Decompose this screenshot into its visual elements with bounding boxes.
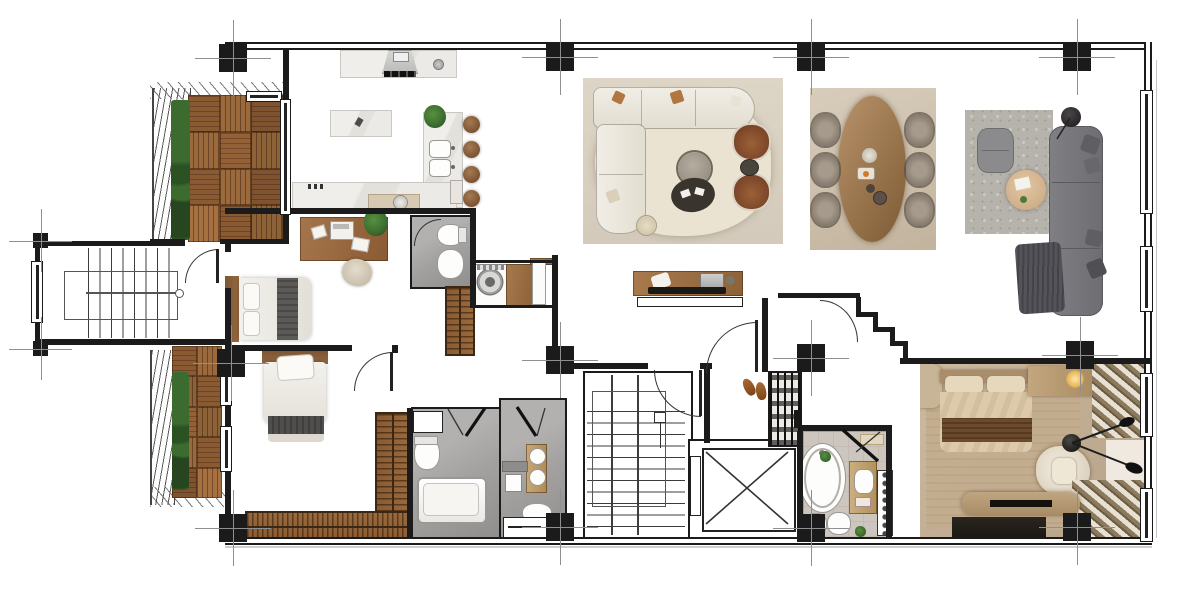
column [1063,513,1091,541]
lounge-throw [1015,241,1066,314]
column [219,514,247,542]
living-room-floor [583,78,783,244]
bar-stool [463,166,480,183]
wall-bottom-shadow [225,546,1152,548]
tray-dot [863,171,869,177]
wc-toilet [437,249,464,279]
sofa-pillow [730,95,742,107]
wall-wc-east [470,208,476,308]
bar-sink [429,159,451,177]
table-plate [862,148,877,163]
desk-papers [351,237,370,253]
sofa-seam [1052,182,1100,183]
entry-stair-landing [64,271,178,320]
deck-tile [188,95,220,132]
master-bedroom-photo [920,362,1145,543]
bath-plant [820,451,831,462]
floor-lamp-living [637,216,656,235]
stair-arrow-stem [660,422,661,448]
dining-chair [906,194,933,226]
entry-door-leaf [216,249,219,283]
wall-stairs-top [35,241,185,246]
hood-vent [393,52,409,62]
stair-up-arrow [655,413,665,422]
lounge-rug [965,110,1053,234]
table-plant-dot [1020,196,1027,203]
deck-tile [197,468,222,498]
column [217,349,245,377]
bedside-lamp-glow [1066,370,1084,388]
bed2-pillow [276,354,315,382]
bed2-foot-blanket [268,434,324,442]
wall-bedroom1-north [225,208,475,214]
deck-tile [197,376,222,406]
master-bed-pillow [987,376,1025,393]
bathtub-inner [423,483,479,516]
deck-tile [220,132,252,169]
wall-balcony-bottom [220,239,289,244]
dining-chair [906,154,933,186]
bath-shelf [503,462,527,471]
bath-towel-shelf [860,434,884,445]
floor-plan [0,0,1182,591]
entry-door-arc [185,249,219,283]
wall-bathA-west [407,408,413,537]
bedside-desk [1028,366,1094,396]
window-light [1106,440,1145,480]
wall-kitchen-west-upper [283,48,289,100]
dining-floor [810,88,936,250]
plant-wall-upper [171,100,190,240]
deck-tile [251,169,283,206]
deck-tile [188,132,220,169]
side-table [741,160,758,175]
hall-door-leaf [699,370,702,416]
sofa-pillow-gray [1085,229,1104,248]
console-deco-dots [726,276,735,285]
column [546,346,574,374]
wall-top [225,42,1152,50]
elevator-door-panel [690,456,701,516]
sink-faucet-dot [451,165,455,169]
wall-right-sill [1156,60,1157,538]
console-shelf-outline [637,297,743,307]
wall-kitchen-west-lower [283,212,289,242]
living-door-leaf [755,320,758,372]
counter-bottles [450,180,463,204]
slipper [755,381,768,400]
kitchen-balcony-slider [280,99,291,215]
corridor-door-arc [820,300,858,342]
bed1-throw [277,278,298,340]
sofa-cushion-line [599,174,643,175]
column [797,43,825,71]
hall-cabinet-door [532,261,546,305]
deck-tile [188,205,220,242]
column [797,514,825,542]
master-floor-lamp-base [1062,434,1081,452]
master-toilet [827,512,851,535]
master-bed-throw [942,418,1032,442]
column-small [33,233,48,248]
deck-tile [197,407,222,437]
counter-faucet [434,60,443,69]
column [219,44,247,72]
column [546,43,574,71]
elevator-car [702,448,796,532]
wall-masterbath-top [800,425,889,431]
sofa-cushion-line [641,90,642,126]
column [1063,43,1091,71]
armchair-brown [734,175,769,209]
window-right [1140,373,1153,437]
bar-stool [463,190,480,207]
counter-hob-marks [308,184,324,189]
wardrobe-slatted-large [375,412,411,516]
bar-stool [463,116,480,133]
wc-cistern [458,227,467,243]
wall-zigzag-top [778,293,860,298]
vanity-tray [855,497,871,507]
bedroom2-door-arc [354,352,393,391]
floor-lamp-lounge [1061,107,1081,127]
sectional-sofa-left [596,124,646,234]
deck-tile [188,169,220,206]
bedroom2-balcony-window [220,426,232,472]
deck-tile [251,132,283,169]
balcony-deck-upper [188,95,283,242]
fireplace-slot [990,500,1052,507]
balcony-top-slider [246,91,282,102]
column [1066,341,1094,369]
column [797,344,825,372]
wall-laundry-bottom [472,305,558,308]
dining-chair [812,114,839,146]
laundry-counter-wood [506,264,533,306]
washer [478,270,502,294]
table-cup [874,192,886,204]
bath-plant [855,526,866,537]
sofa-cushion-line [695,90,696,126]
console-tv-bar [648,287,726,294]
bath-sink-box [413,411,443,433]
bar-stool [463,141,480,158]
curtains-top-right [1092,362,1145,438]
stair-landing-rect [592,391,666,507]
bed1-pillow [243,311,260,336]
dining-chair [812,154,839,186]
wall-corridor-east [704,363,710,443]
dining-chair [906,114,933,146]
counter-plant [424,105,446,128]
entry-stair-midline [86,292,180,294]
laptop-screen [333,224,349,229]
washer-panel [477,265,504,270]
window-right [1140,90,1153,214]
armchair-brown [734,125,769,159]
cooktop [384,71,416,77]
window-right [1140,246,1153,312]
window-right [1140,488,1153,542]
table-bowl [866,184,875,193]
wall-laundry-top [472,260,554,263]
master-vanity-sink [854,469,874,494]
bath-white-box [505,474,522,492]
master-bed-pillow [945,376,983,393]
wall-hallniche-west [762,298,768,372]
bedroom-side-bench [920,364,942,408]
bath-cistern [414,436,438,445]
lounge-pouf-seam [982,150,1009,151]
dining-chair [812,194,839,226]
wall-stairs-bottom [35,339,227,345]
plant-wall-lower [172,372,189,490]
bar-sink [429,140,451,158]
column-small [33,341,48,356]
bedroom2-door-leaf [390,352,393,391]
wall-master-north [900,358,1152,364]
vanity-sink [529,448,546,465]
wall-masterbath-east [886,425,892,538]
living-door-arc [706,322,757,373]
deck-tile [197,437,222,467]
entry-stair-newel [175,289,184,298]
deck-tile [220,169,252,206]
wall-bottom [225,537,1152,545]
vanity-sink [529,469,546,486]
bed1-pillow [243,283,260,310]
bed2-throw [268,416,324,434]
sink-faucet-dot [451,146,455,150]
column [546,513,574,541]
